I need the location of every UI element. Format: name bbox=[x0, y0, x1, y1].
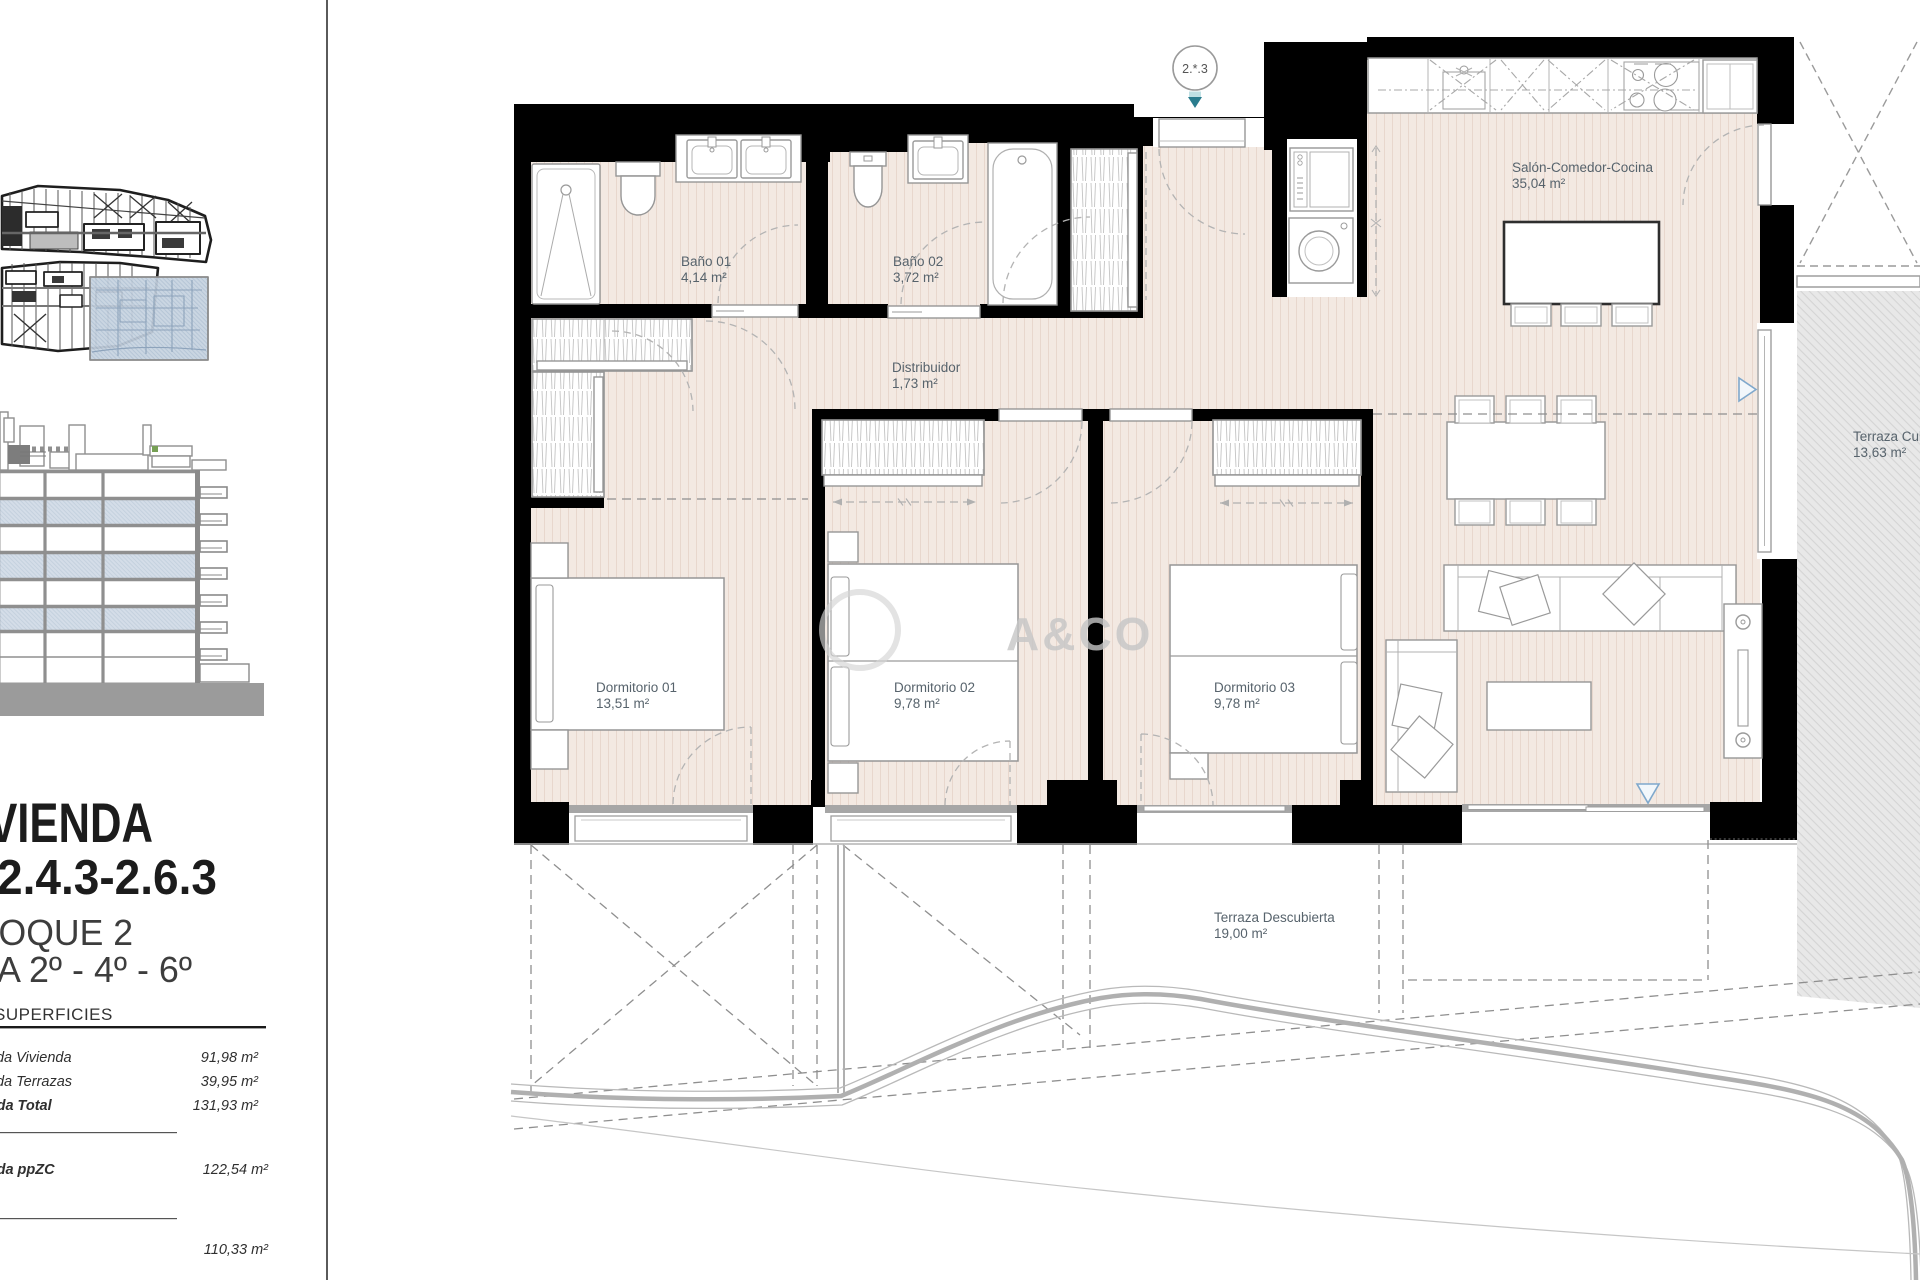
svg-text:Dormitorio 01: Dormitorio 01 bbox=[596, 680, 677, 695]
svg-text:VIVIENDA: VIVIENDA bbox=[0, 791, 153, 854]
svg-text:4,14 m²: 4,14 m² bbox=[681, 270, 727, 285]
svg-text:9,78 m²: 9,78 m² bbox=[1214, 696, 1260, 711]
svg-text:2.4.3-2.6.3: 2.4.3-2.6.3 bbox=[0, 851, 217, 905]
svg-text:122,54 m²: 122,54 m² bbox=[203, 1162, 269, 1178]
svg-text:BLOQUE 2: BLOQUE 2 bbox=[0, 912, 133, 953]
svg-text:PLANTA 2º - 4º - 6º: PLANTA 2º - 4º - 6º bbox=[0, 949, 192, 990]
svg-text:Baño 01: Baño 01 bbox=[681, 254, 731, 269]
svg-text:Dormitorio 03: Dormitorio 03 bbox=[1214, 680, 1295, 695]
svg-text:9,78 m²: 9,78 m² bbox=[894, 696, 940, 711]
svg-text:13,51 m²: 13,51 m² bbox=[596, 696, 650, 711]
svg-text:Terraza Cubierta: Terraza Cubierta bbox=[1853, 429, 1920, 444]
svg-text:13,63 m²: 13,63 m² bbox=[1853, 445, 1907, 460]
svg-text:Baño 02: Baño 02 bbox=[893, 254, 943, 269]
svg-text:3,72 m²: 3,72 m² bbox=[893, 270, 939, 285]
svg-text:A&CO: A&CO bbox=[1006, 608, 1153, 660]
svg-text:Construida Vivienda: Construida Vivienda bbox=[0, 1050, 72, 1066]
svg-text:Construida Terrazas: Construida Terrazas bbox=[0, 1074, 72, 1090]
svg-text:Construida Total: Construida Total bbox=[0, 1098, 53, 1114]
svg-text:Salón-Comedor-Cocina: Salón-Comedor-Cocina bbox=[1512, 160, 1654, 175]
svg-text:1,73 m²: 1,73 m² bbox=[892, 376, 938, 391]
svg-text:19,00 m²: 19,00 m² bbox=[1214, 926, 1268, 941]
svg-text:131,93 m²: 131,93 m² bbox=[193, 1098, 259, 1114]
svg-text:Dormitorio 02: Dormitorio 02 bbox=[894, 680, 975, 695]
svg-text:39,95 m²: 39,95 m² bbox=[201, 1074, 259, 1090]
svg-text:2.*.3: 2.*.3 bbox=[1182, 62, 1208, 76]
svg-text:SUPERFICIES: SUPERFICIES bbox=[0, 1005, 113, 1024]
svg-text:35,04 m²: 35,04 m² bbox=[1512, 176, 1566, 191]
svg-text:Construida ppZC: Construida ppZC bbox=[0, 1162, 55, 1178]
svg-text:91,98 m²: 91,98 m² bbox=[201, 1050, 259, 1066]
svg-text:Terraza Descubierta: Terraza Descubierta bbox=[1214, 910, 1335, 925]
svg-text:Distribuidor: Distribuidor bbox=[892, 360, 961, 375]
svg-text:110,33 m²: 110,33 m² bbox=[204, 1242, 269, 1258]
